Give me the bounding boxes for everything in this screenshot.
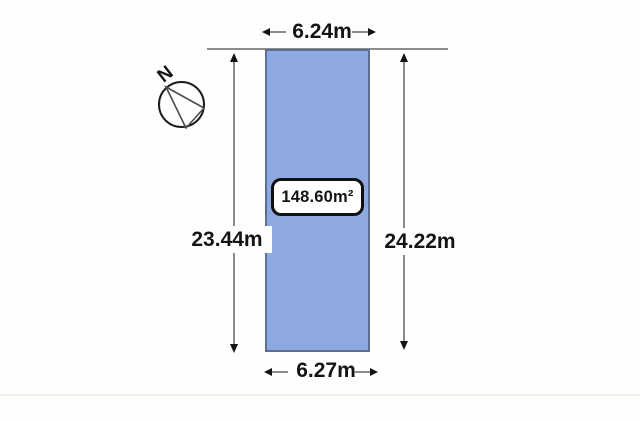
dimension-line-right <box>403 60 405 342</box>
dimension-label-right: 24.22m <box>375 228 465 255</box>
arrow-down-icon <box>400 341 408 350</box>
arrow-up-icon <box>400 53 408 62</box>
arrow-right-icon <box>368 28 376 36</box>
land-parcel-diagram: 148.60m² N 6.24m 6.27m 23.44m 24.22m <box>0 0 640 421</box>
arrow-left-icon <box>262 28 270 36</box>
arrow-left-icon <box>264 368 272 376</box>
arrow-right-icon <box>370 368 378 376</box>
area-label: 148.60m² <box>281 188 353 207</box>
compass-needle-icon <box>155 80 215 135</box>
dimension-line-top-left <box>270 31 286 33</box>
area-label-box: 148.60m² <box>271 178 364 216</box>
arrow-up-icon <box>230 53 238 62</box>
dimension-line-left <box>233 60 235 346</box>
dimension-line-bottom-right <box>354 371 370 373</box>
dimension-line-bottom-left <box>272 371 288 373</box>
dimension-label-left: 23.44m <box>182 226 272 253</box>
dimension-line-top-right <box>352 31 368 33</box>
scan-artifact-line <box>0 394 640 396</box>
arrow-down-icon <box>230 344 238 353</box>
